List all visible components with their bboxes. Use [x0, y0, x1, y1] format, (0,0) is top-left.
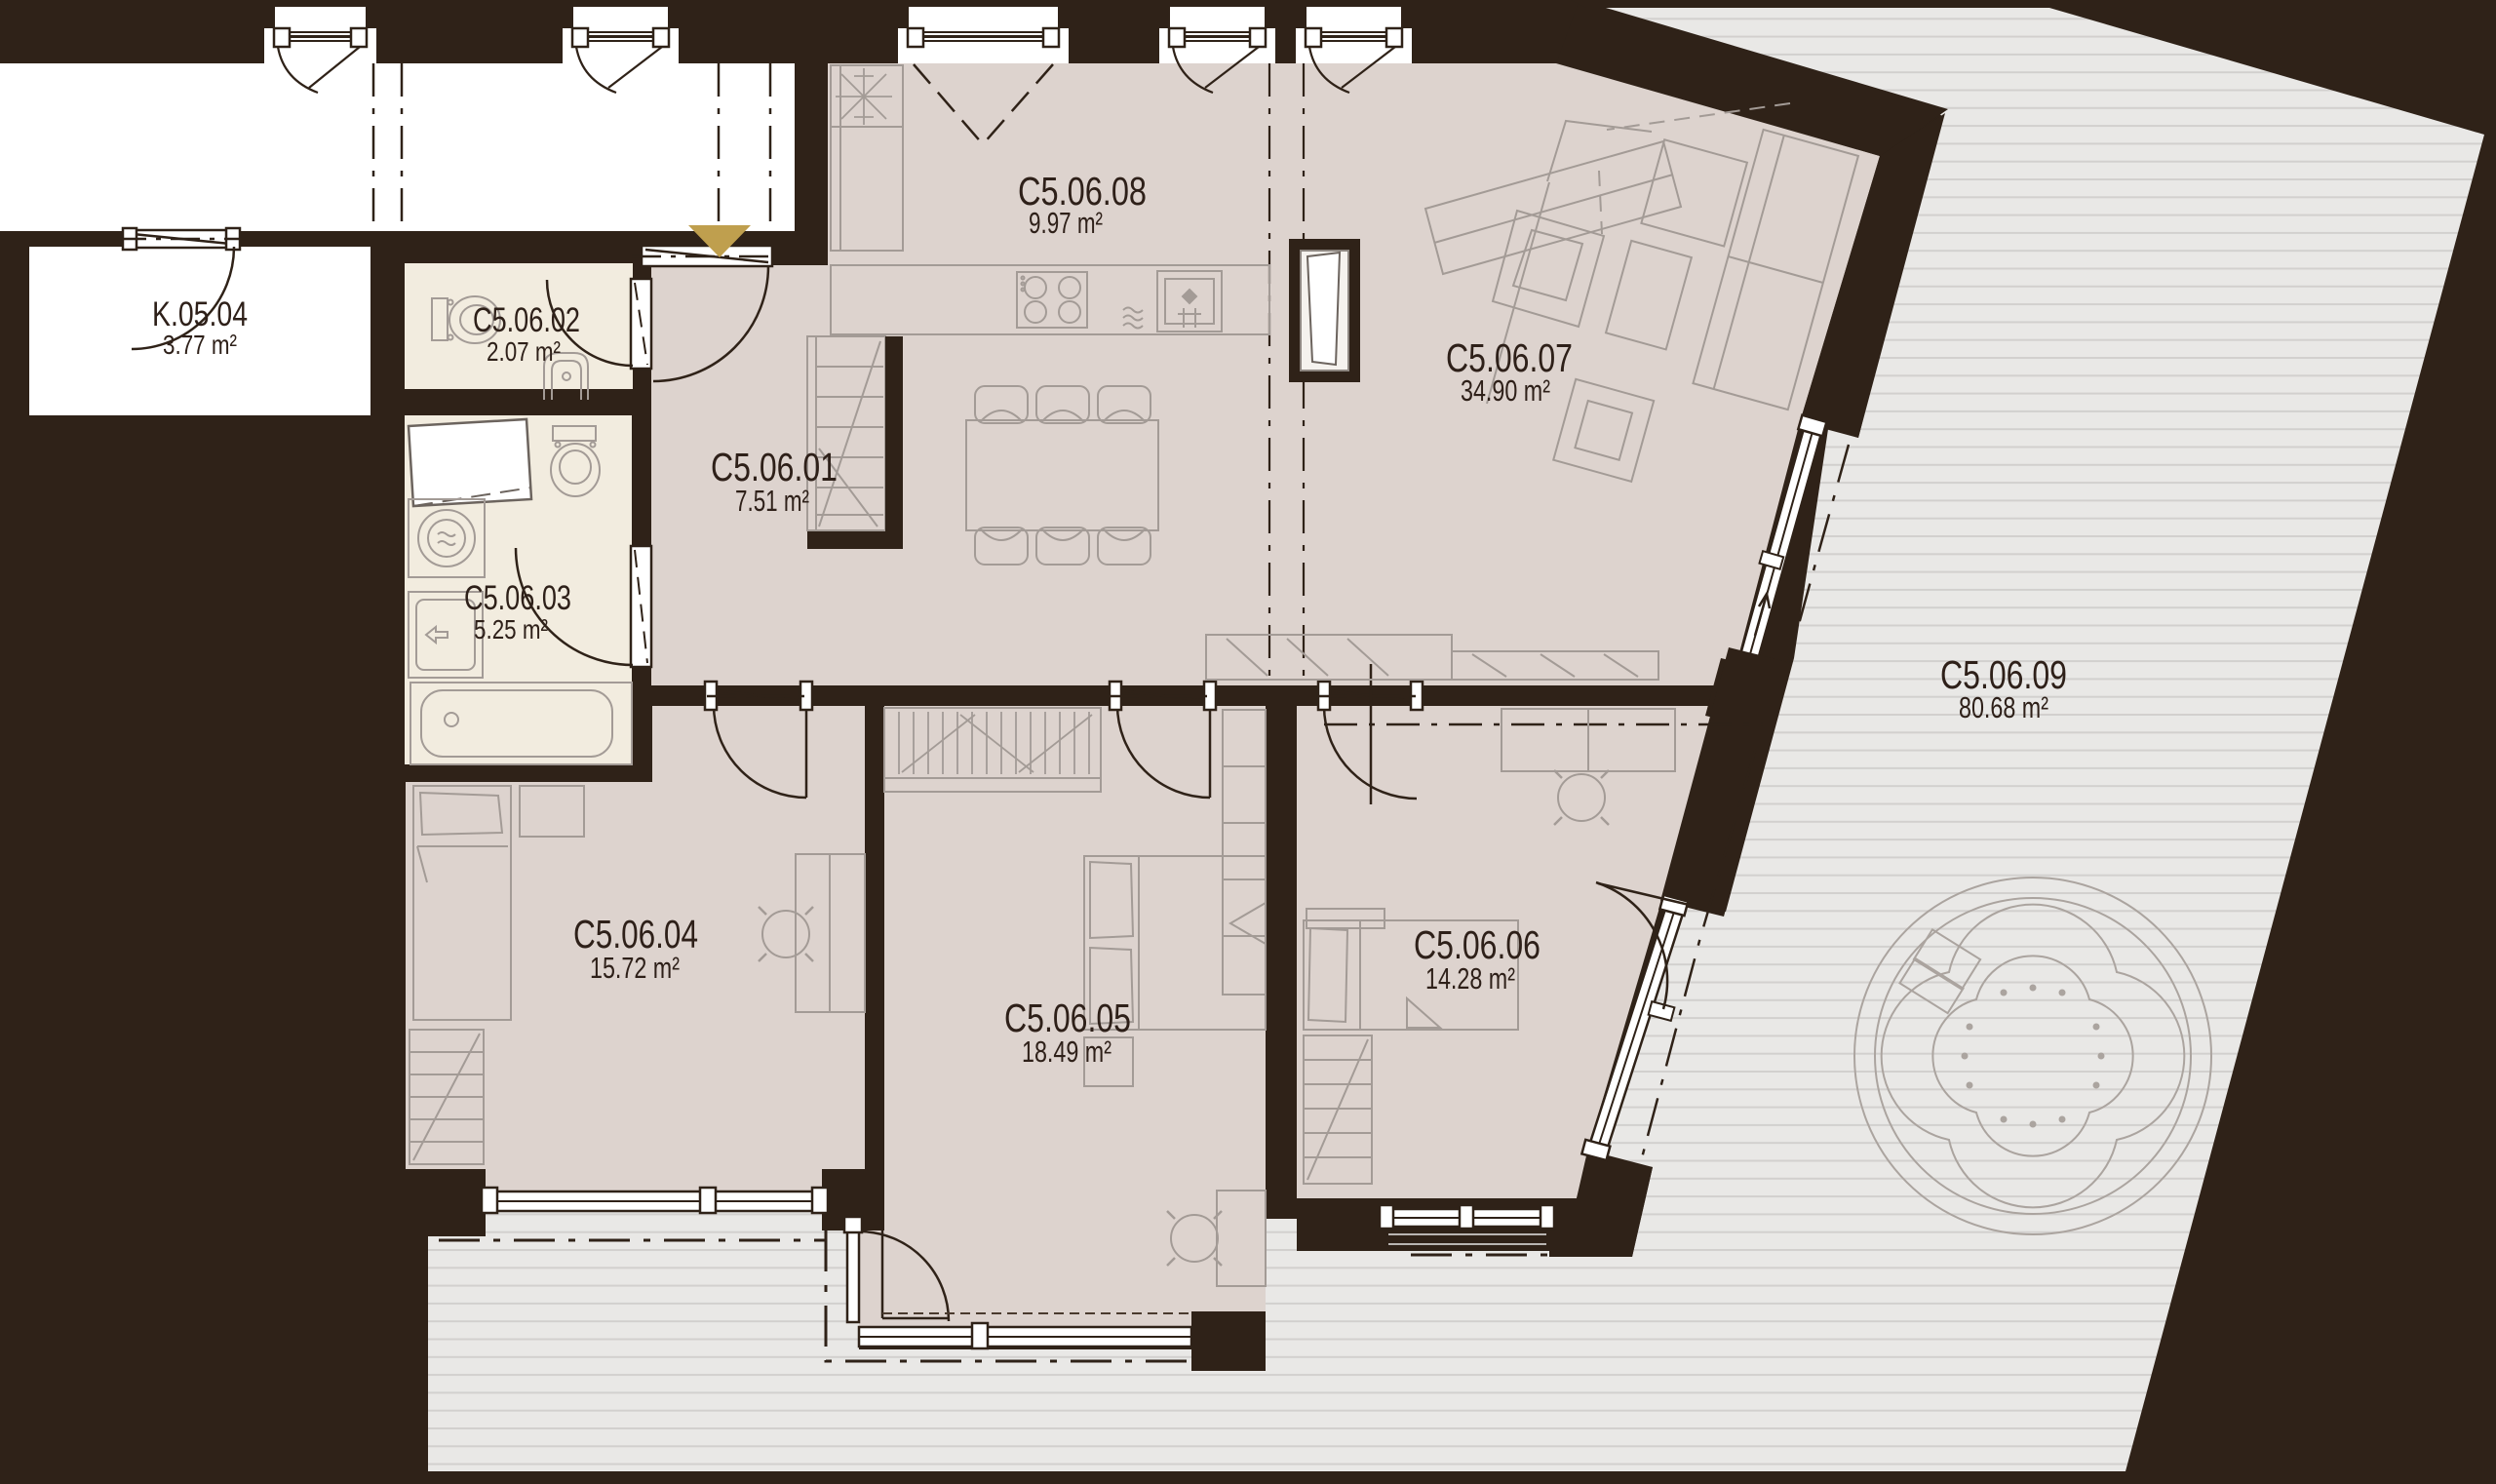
svg-text:2.07 m²: 2.07 m² [487, 336, 561, 367]
svg-text:3.77 m²: 3.77 m² [163, 330, 237, 360]
svg-text:14.28 m²: 14.28 m² [1425, 961, 1515, 996]
svg-text:80.68 m²: 80.68 m² [1959, 690, 2048, 724]
svg-text:C5.06.02: C5.06.02 [473, 301, 580, 339]
svg-text:9.97 m²: 9.97 m² [1029, 206, 1103, 240]
svg-text:15.72 m²: 15.72 m² [590, 951, 680, 985]
svg-text:5.25 m²: 5.25 m² [474, 614, 548, 644]
svg-text:K.05.04: K.05.04 [152, 295, 248, 333]
svg-text:7.51 m²: 7.51 m² [735, 484, 809, 518]
svg-text:34.90 m²: 34.90 m² [1461, 373, 1550, 408]
svg-text:C5.06.03: C5.06.03 [464, 579, 571, 617]
svg-text:18.49 m²: 18.49 m² [1022, 1035, 1111, 1069]
